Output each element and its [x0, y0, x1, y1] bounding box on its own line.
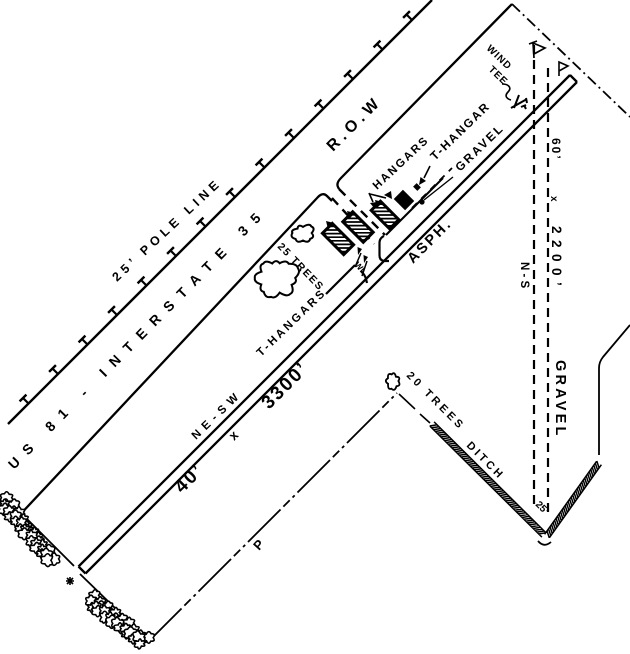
- svg-text:x: x: [226, 427, 242, 443]
- svg-text:3300’: 3300’: [258, 358, 314, 414]
- svg-text:P: P: [250, 536, 267, 553]
- svg-text:25’: 25’: [533, 499, 551, 517]
- svg-text:HANGARS: HANGARS: [371, 134, 432, 192]
- svg-text:R.O.W: R.O.W: [324, 93, 386, 155]
- svg-text:ASPH.: ASPH.: [405, 216, 456, 267]
- svg-text:40’: 40’: [171, 460, 209, 498]
- svg-text:60’: 60’: [549, 138, 563, 161]
- svg-text:T-HANGARS: T-HANGARS: [255, 287, 329, 359]
- svg-text:GRAVEL: GRAVEL: [552, 360, 568, 439]
- svg-text:2200’: 2200’: [549, 226, 564, 292]
- svg-text:N-S: N-S: [518, 262, 530, 291]
- svg-text:x: x: [548, 196, 559, 202]
